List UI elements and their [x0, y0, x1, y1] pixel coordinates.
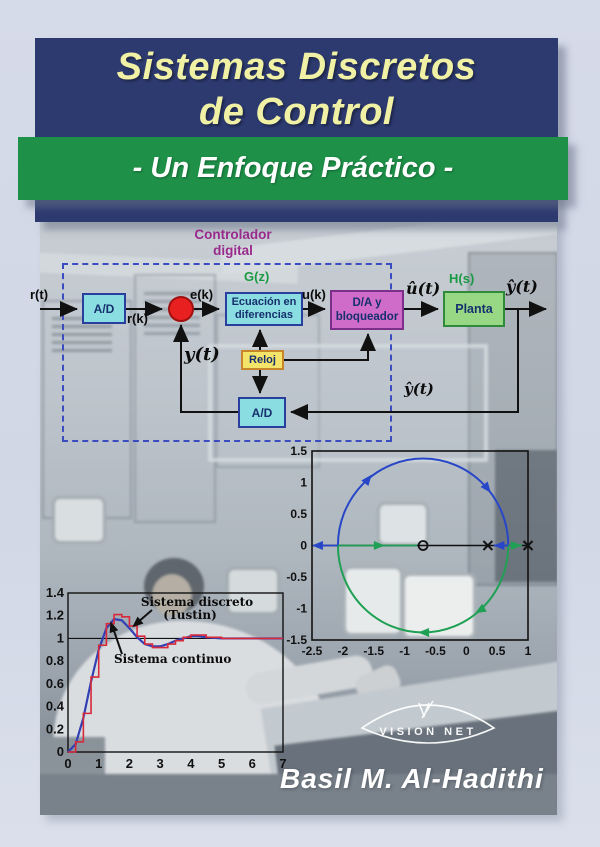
subtitle-banner: - Un Enfoque Práctico -: [18, 137, 568, 200]
controller-label: Controlador digital: [183, 227, 283, 259]
svg-text:(Tustin): (Tustin): [163, 608, 217, 622]
publisher-name: VISION NET: [379, 726, 476, 738]
difference-eq-line1: Ecuación en: [232, 296, 297, 309]
signal-yhat-top: ŷ(t): [506, 277, 538, 296]
signal-uhat: û(t): [406, 279, 440, 298]
svg-text:-2: -2: [338, 644, 349, 658]
step-response-chart: 00.20.40.60.811.21.401234567Sistema disc…: [40, 578, 300, 778]
hs-label: H(s): [449, 271, 474, 286]
author-name: Basil M. Al-Hadithi: [280, 763, 565, 795]
svg-text:1.2: 1.2: [46, 608, 64, 623]
book-title-line1: Sistemas Discretos: [117, 45, 477, 90]
svg-text:Sistema discreto: Sistema discreto: [141, 595, 253, 609]
da-hold-line1: D/A y: [353, 296, 382, 310]
svg-text:1.4: 1.4: [46, 585, 65, 600]
controller-label-line2: digital: [183, 243, 283, 259]
svg-text:0.5: 0.5: [290, 507, 307, 521]
svg-text:Sistema continuo: Sistema continuo: [114, 652, 231, 666]
svg-text:0.2: 0.2: [46, 721, 64, 736]
svg-text:3: 3: [157, 756, 164, 771]
ad-input-label: A/D: [94, 302, 115, 316]
svg-text:0: 0: [300, 539, 307, 553]
signal-ek: e(k): [190, 287, 213, 302]
svg-text:0.8: 0.8: [46, 653, 64, 668]
clock-label: Reloj: [249, 354, 276, 366]
da-hold-block: D/A y bloqueador: [330, 290, 404, 330]
signal-yt: y(t): [184, 344, 220, 365]
svg-text:0.4: 0.4: [46, 699, 65, 714]
svg-text:2: 2: [126, 756, 133, 771]
svg-text:-2.5: -2.5: [302, 644, 323, 658]
crt-screen: [52, 496, 106, 544]
svg-text:0.5: 0.5: [489, 644, 506, 658]
svg-text:0: 0: [463, 644, 470, 658]
svg-text:-0.5: -0.5: [425, 644, 446, 658]
vision-net-logo: VISION NET: [358, 694, 498, 758]
plant-block: Planta: [443, 291, 505, 327]
signal-rk: r(k): [127, 311, 148, 326]
book-cover: Sistemas Discretos de Control - Un Enfoq…: [0, 0, 600, 847]
svg-text:5: 5: [218, 756, 225, 771]
signal-rt: r(t): [30, 287, 48, 302]
svg-text:1: 1: [525, 644, 532, 658]
root-locus-chart: 1.510.50-0.5-1-1.5-2.5-2-1.5-1-0.500.51: [278, 435, 538, 660]
difference-eq-line2: diferencias: [235, 309, 293, 322]
svg-text:0: 0: [57, 744, 64, 759]
vn-monogram-icon: [419, 701, 433, 718]
book-title-line2: de Control: [199, 90, 394, 135]
clock-block: Reloj: [241, 350, 284, 370]
plant-label: Planta: [455, 302, 493, 316]
controller-label-line1: Controlador: [183, 227, 283, 243]
svg-text:1: 1: [95, 756, 102, 771]
svg-text:-1.5: -1.5: [363, 644, 384, 658]
da-hold-line2: bloqueador: [336, 310, 399, 324]
difference-equation-block: Ecuación en diferencias: [225, 292, 303, 326]
svg-text:1: 1: [57, 630, 64, 645]
svg-text:-1: -1: [399, 644, 410, 658]
svg-text:6: 6: [249, 756, 256, 771]
book-subtitle: - Un Enfoque Práctico -: [133, 152, 454, 185]
svg-text:1.5: 1.5: [290, 444, 307, 458]
signal-uk: u(k): [302, 287, 326, 302]
ad-feedback-block: A/D: [238, 397, 286, 428]
ad-feedback-label: A/D: [252, 406, 273, 420]
signal-yhat-bottom: ŷ(t): [404, 380, 434, 398]
svg-text:0: 0: [64, 756, 71, 771]
svg-text:4: 4: [187, 756, 195, 771]
ad-input-block: A/D: [82, 293, 126, 324]
gz-label: G(z): [244, 269, 269, 284]
svg-text:0.6: 0.6: [46, 676, 64, 691]
svg-text:1: 1: [300, 476, 307, 490]
